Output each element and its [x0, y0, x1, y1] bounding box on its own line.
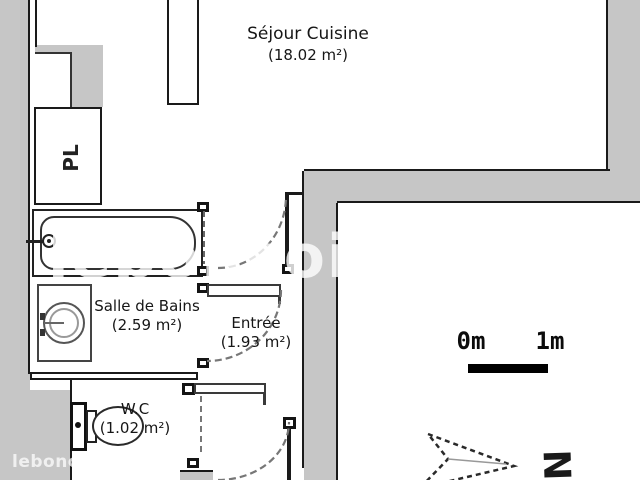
room-name-sejour: Séjour Cuisine — [228, 24, 388, 46]
room-name-wc: W.C — [85, 400, 185, 419]
scale-start-label: 0m — [450, 327, 492, 355]
sejour-door-swing-arc — [218, 196, 286, 268]
scale-end-label: 1m — [529, 327, 571, 355]
room-label-bathroom: Salle de Bains (2.59 m²) — [87, 297, 207, 335]
north-arrow-icon — [420, 434, 514, 480]
floor-plan: PL Séjour Cuisine — [0, 0, 640, 480]
room-label-wc: W.C (1.02 m²) — [85, 400, 185, 438]
scale-bar — [468, 364, 548, 373]
room-name-bathroom: Salle de Bains — [87, 297, 207, 316]
compass-north-label: N — [535, 441, 579, 480]
entry-door-swing-arc — [218, 422, 289, 480]
room-area-sejour: (18.02 m²) — [228, 46, 388, 65]
room-label-sejour: Séjour Cuisine (18.02 m²) — [228, 24, 388, 65]
room-area-entree: (1.93 m²) — [204, 333, 308, 352]
room-name-entree: Entrée — [204, 314, 308, 333]
room-area-wc: (1.02 m²) — [85, 419, 185, 438]
room-label-entree: Entrée (1.93 m²) — [204, 314, 308, 352]
room-area-bathroom: (2.59 m²) — [87, 316, 207, 335]
